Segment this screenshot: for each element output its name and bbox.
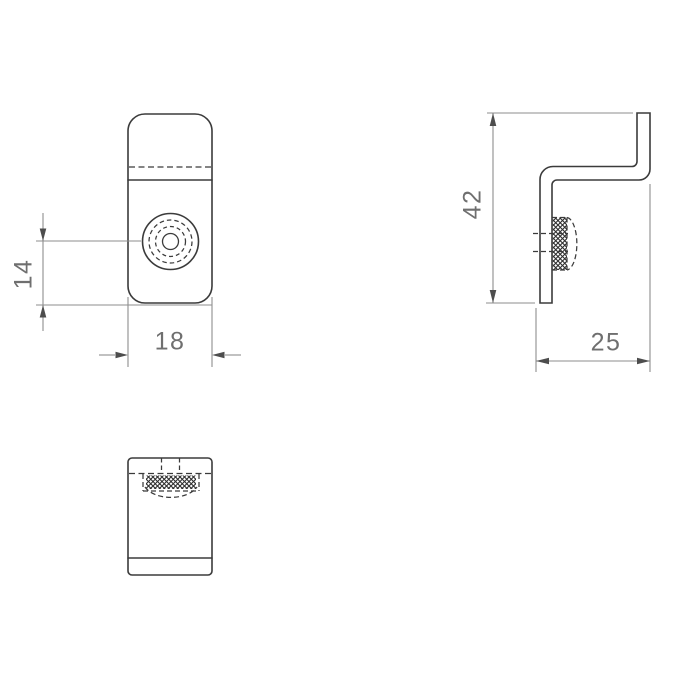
drawing-background xyxy=(0,0,685,685)
dim-label-25: 25 xyxy=(591,329,622,357)
dim-label-18: 18 xyxy=(155,328,186,356)
dim-label-42: 42 xyxy=(459,189,487,220)
dim-label-14: 14 xyxy=(10,259,38,290)
technical-drawing-canvas: 14 18 xyxy=(0,0,685,685)
